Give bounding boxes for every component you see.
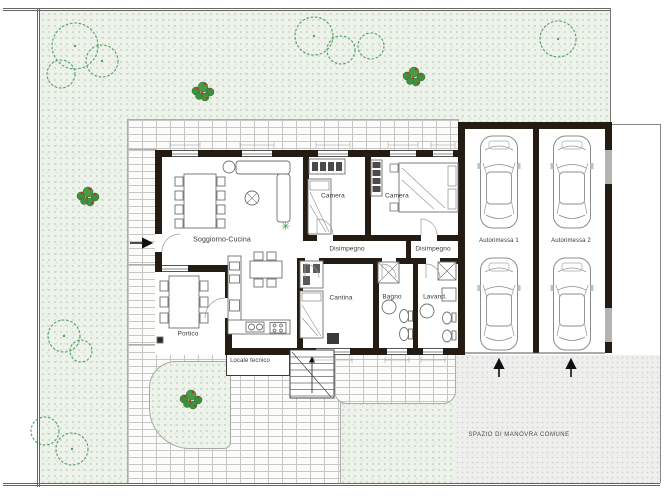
site-boundary-east bbox=[610, 8, 611, 122]
room-label-cantina: Cantina bbox=[329, 295, 352, 302]
bush-icon bbox=[403, 67, 425, 86]
neighbor-line-v bbox=[660, 124, 661, 483]
room-label-portico: Portico bbox=[178, 331, 199, 338]
room-label-camera-2: Camera bbox=[385, 193, 409, 200]
car-icon bbox=[551, 258, 594, 350]
storage-furniture-icon bbox=[300, 261, 339, 344]
stairs-icon bbox=[290, 350, 334, 398]
site-boundary-south bbox=[3, 483, 660, 486]
car-icon bbox=[478, 136, 521, 228]
room-label-bagno: Bagno bbox=[382, 294, 401, 301]
bush-icon bbox=[77, 187, 99, 206]
room-label-autorimessa-1: Autorimessa 1 bbox=[479, 238, 519, 244]
neighbor-line-h bbox=[612, 124, 661, 125]
room-label-autorimessa-2: Autorimessa 2 bbox=[551, 238, 591, 244]
room-label-disimpegno-2: Disimpegno bbox=[415, 246, 450, 253]
car-icon bbox=[551, 136, 594, 228]
floor-plan-canvas: ✳ Soggiorno-Cucina Camera Camera Disimpe… bbox=[0, 0, 667, 500]
site-boundary-west bbox=[37, 8, 40, 487]
site-boundary-north bbox=[3, 8, 610, 11]
gate-mark bbox=[605, 150, 612, 184]
room-label-locale-tecnico: Locale tecnico bbox=[230, 358, 270, 364]
room-label-soggiorno: Soggiorno-Cucina bbox=[193, 237, 251, 244]
plant-icon: ✳ bbox=[281, 221, 290, 233]
bed-double-icon bbox=[371, 160, 458, 212]
car-icon bbox=[478, 258, 521, 350]
sofa-icon bbox=[223, 161, 290, 222]
room-label-lavanderia: Lavand. bbox=[423, 294, 447, 301]
label-spazio-manovra: SPAZIO DI MANOVRA COMUNE bbox=[468, 432, 569, 438]
gate-mark bbox=[605, 308, 612, 342]
dining-table-icon bbox=[175, 174, 225, 228]
laundry-fixtures-icon bbox=[420, 262, 456, 342]
room-label-camera-1: Camera bbox=[321, 193, 345, 200]
room-label-disimpegno-1: Disimpegno bbox=[329, 246, 364, 253]
bush-icon bbox=[180, 390, 202, 409]
bush-icon bbox=[192, 82, 214, 101]
breakfast-table-icon bbox=[250, 252, 282, 287]
